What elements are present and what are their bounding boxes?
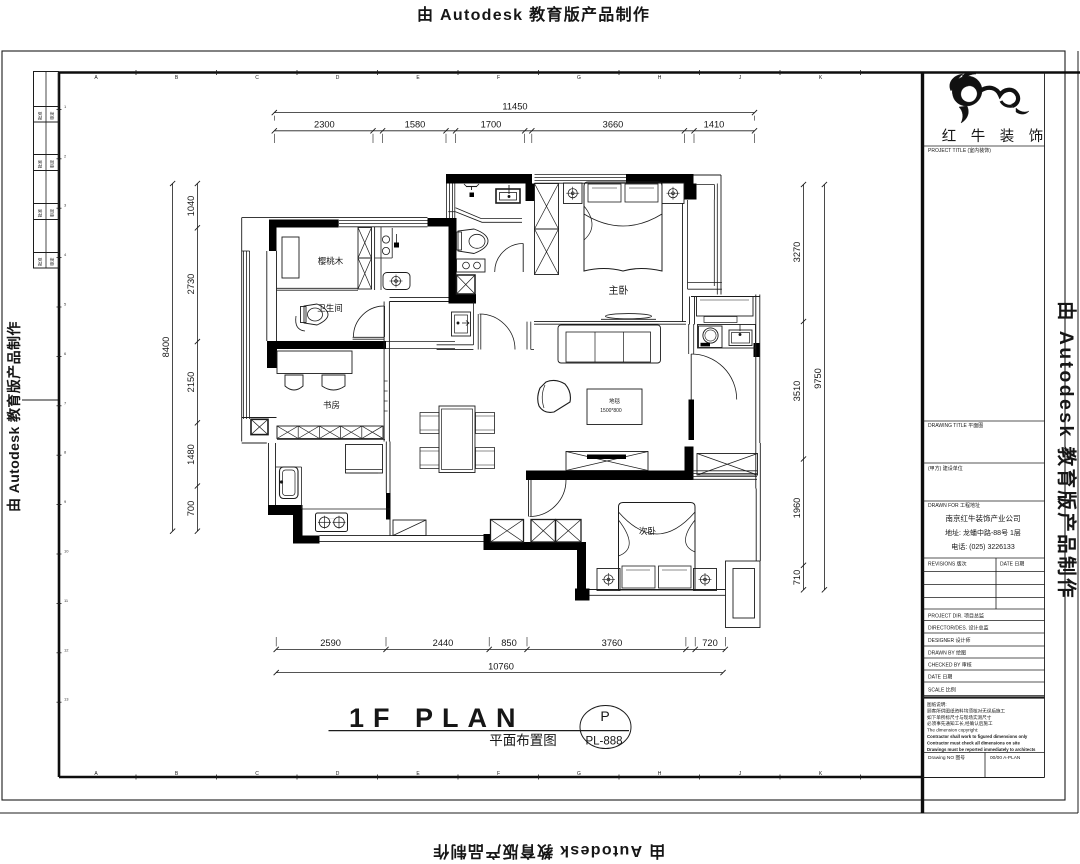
svg-text:书房: 书房 <box>323 400 340 410</box>
svg-text:700: 700 <box>186 501 196 517</box>
svg-text:DRAWN FOR 工程地址: DRAWN FOR 工程地址 <box>928 502 980 509</box>
svg-text:顾客所供图纸资料均须核对无误后施工: 顾客所供图纸资料均须核对无误后施工 <box>927 707 1006 714</box>
svg-text:J: J <box>739 75 742 81</box>
svg-text:3: 3 <box>64 203 67 208</box>
svg-text:....: .... <box>329 515 333 520</box>
svg-text:G: G <box>577 75 581 81</box>
svg-text:批准: 批准 <box>37 160 44 168</box>
svg-text:1040: 1040 <box>186 196 196 217</box>
svg-text:4: 4 <box>64 252 67 257</box>
svg-text:审定: 审定 <box>49 160 56 168</box>
svg-text:牛: 牛 <box>971 128 986 145</box>
svg-text:Drawings must be reported imme: Drawings must be reported immediately to… <box>927 747 1036 752</box>
svg-text:DRAWN BY 绘图: DRAWN BY 绘图 <box>928 650 966 657</box>
svg-text:必须事先通知工长,经确认后施工: 必须事先通知工长,经确认后施工 <box>927 720 993 727</box>
svg-text:装: 装 <box>1000 128 1015 145</box>
svg-text:由 Autodesk 教育版产品制作: 由 Autodesk 教育版产品制作 <box>1055 301 1078 600</box>
svg-text:12: 12 <box>64 647 69 652</box>
svg-text:红: 红 <box>942 128 957 145</box>
svg-text:10: 10 <box>64 549 69 554</box>
svg-text:The dimension copyright:: The dimension copyright: <box>927 728 978 733</box>
svg-text:P: P <box>600 708 609 724</box>
svg-text:地毯: 地毯 <box>609 397 621 405</box>
svg-text:如下单所标尺寸与现场实测尺寸: 如下单所标尺寸与现场实测尺寸 <box>927 714 992 721</box>
svg-text:主卧: 主卧 <box>609 284 629 297</box>
svg-text:D: D <box>336 771 340 777</box>
svg-text:G: G <box>577 771 581 777</box>
svg-text:DATE 日期: DATE 日期 <box>928 675 952 681</box>
svg-text:850: 850 <box>501 638 517 648</box>
svg-text:3660: 3660 <box>603 120 624 130</box>
svg-text:2590: 2590 <box>320 638 341 648</box>
svg-text:9: 9 <box>64 499 67 504</box>
svg-text:11: 11 <box>64 598 69 603</box>
svg-text:H: H <box>658 771 662 777</box>
svg-text:3510: 3510 <box>792 381 802 402</box>
svg-text:DESIGNER 设计师: DESIGNER 设计师 <box>928 637 971 644</box>
svg-text:D: D <box>336 75 340 81</box>
svg-text:批准: 批准 <box>37 258 44 266</box>
svg-text:1700: 1700 <box>481 120 502 130</box>
svg-text:电话: (025) 3226133: 电话: (025) 3226133 <box>951 542 1015 551</box>
svg-text:平面布置图: 平面布置图 <box>489 733 557 748</box>
svg-text:10760: 10760 <box>488 661 514 671</box>
svg-text:13: 13 <box>64 697 69 702</box>
svg-text:Drawing NO 图号: Drawing NO 图号 <box>928 755 965 761</box>
svg-text:F: F <box>497 75 500 81</box>
svg-text:图纸说明:: 图纸说明: <box>927 701 947 708</box>
svg-text:8: 8 <box>64 450 67 455</box>
svg-text:1960: 1960 <box>792 498 802 519</box>
svg-text:710: 710 <box>792 570 802 586</box>
svg-text:1410: 1410 <box>704 120 725 130</box>
svg-text:2440: 2440 <box>433 638 454 648</box>
svg-text:C: C <box>255 75 259 81</box>
svg-text:批准: 批准 <box>37 209 44 217</box>
svg-text:PROJECT DIR. 项目总监: PROJECT DIR. 项目总监 <box>928 612 984 619</box>
svg-text:PL-888: PL-888 <box>585 736 622 748</box>
svg-text:DATE 日期: DATE 日期 <box>1000 562 1024 568</box>
svg-text:REVISIONS 版次: REVISIONS 版次 <box>928 561 967 568</box>
svg-text:地址: 龙蟠中路-88号 1层: 地址: 龙蟠中路-88号 1层 <box>945 528 1021 537</box>
svg-text:3270: 3270 <box>792 242 802 263</box>
svg-text:DRAWING TITLE 平面图: DRAWING TITLE 平面图 <box>928 423 983 429</box>
svg-text:F: F <box>497 771 500 777</box>
svg-text:饰: 饰 <box>1029 128 1044 145</box>
svg-text:批准: 批准 <box>37 112 44 120</box>
svg-text:1580: 1580 <box>405 120 426 130</box>
svg-text:C: C <box>255 771 259 777</box>
svg-text:卫生间: 卫生间 <box>317 303 343 313</box>
svg-text:CHECKED BY 审核: CHECKED BY 审核 <box>928 662 972 669</box>
svg-text:(甲方) 建设单位: (甲方) 建设单位 <box>928 465 963 472</box>
svg-text:审定: 审定 <box>49 258 56 266</box>
svg-text:2150: 2150 <box>186 372 196 393</box>
svg-text:1500*800: 1500*800 <box>600 408 622 414</box>
svg-text:PROJECT TITLE (室内装饰): PROJECT TITLE (室内装饰) <box>928 147 991 154</box>
svg-text:K: K <box>819 75 823 81</box>
svg-text:8400: 8400 <box>161 337 171 358</box>
svg-text:审定: 审定 <box>49 209 56 217</box>
svg-text:1F PLAN: 1F PLAN <box>349 703 525 733</box>
svg-text:Contractor must check all dime: Contractor must check all dimensions on … <box>927 740 1020 745</box>
svg-text:DIRECTOR/DES. 设计总监: DIRECTOR/DES. 设计总监 <box>928 624 988 631</box>
svg-text:2: 2 <box>64 153 67 158</box>
svg-text:2730: 2730 <box>186 274 196 295</box>
svg-text:樱桃木: 樱桃木 <box>318 256 344 266</box>
svg-text:A: A <box>94 75 98 81</box>
svg-text:11450: 11450 <box>502 101 527 111</box>
svg-text:SCALE 比例: SCALE 比例 <box>928 686 956 693</box>
svg-text:B: B <box>175 75 179 81</box>
svg-text:2300: 2300 <box>314 120 335 130</box>
svg-text:E: E <box>416 75 420 81</box>
svg-text:H: H <box>658 75 662 81</box>
svg-text:Contractor shall work to figur: Contractor shall work to figured dimensi… <box>927 734 1028 739</box>
svg-text:5: 5 <box>64 302 67 307</box>
svg-text:审定: 审定 <box>49 112 56 120</box>
svg-text:7: 7 <box>64 400 67 405</box>
svg-text:9750: 9750 <box>813 368 823 389</box>
svg-text:1480: 1480 <box>186 444 196 465</box>
svg-text:6: 6 <box>64 351 67 356</box>
svg-text:次卧: 次卧 <box>639 526 657 536</box>
svg-text:3760: 3760 <box>602 638 623 648</box>
svg-text:南京红牛装饰产业公司: 南京红牛装饰产业公司 <box>946 513 1021 523</box>
svg-text:由 Autodesk 教育版产品制作: 由 Autodesk 教育版产品制作 <box>6 321 22 512</box>
svg-text:00/00 A-PLAN: 00/00 A-PLAN <box>990 755 1021 761</box>
svg-text:720: 720 <box>702 638 718 648</box>
svg-text:1: 1 <box>64 104 67 109</box>
